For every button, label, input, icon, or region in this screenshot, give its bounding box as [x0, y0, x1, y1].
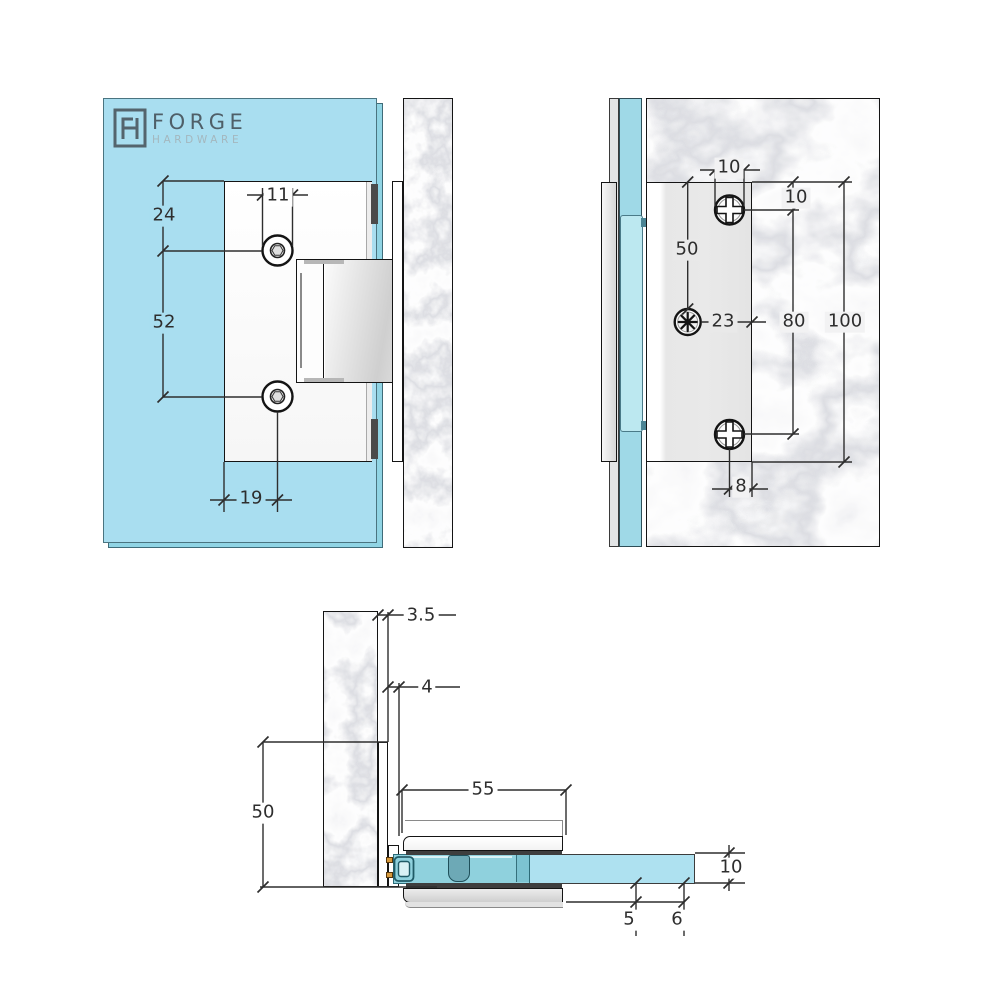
dim-label-23: 23 [709, 312, 738, 333]
dim-label-19: 19 [237, 489, 266, 510]
dim-label-10-offset: 10 [782, 188, 811, 209]
dim-label-4: 4 [418, 678, 435, 699]
dim-label-8: 8 [732, 477, 749, 498]
leaf-clamp-edge-band [516, 855, 529, 882]
clamp-pad-bottom [371, 419, 378, 459]
dim-label-10-glass: 10 [717, 858, 746, 879]
cover-plate-edge [601, 182, 617, 462]
drawing-canvas: FORGE HARDWARE [0, 0, 1000, 1000]
dim-label-3-5: 3.5 [404, 606, 439, 627]
dim-label-24: 24 [150, 206, 179, 227]
logo-monogram-icon [113, 108, 147, 148]
brand-logo: FORGE HARDWARE [113, 108, 247, 148]
dim-label-52: 52 [150, 313, 179, 334]
set-pin-bottom [386, 872, 393, 879]
brand-subtitle: HARDWARE [152, 134, 247, 146]
knuckle-barrel [325, 260, 392, 382]
glass-hinge-cutout-inset [620, 215, 643, 432]
brand-name: FORGE [152, 111, 247, 133]
dim-label-80: 80 [780, 312, 809, 333]
dim-label-10-top: 10 [715, 158, 744, 179]
set-pin-top [386, 857, 393, 864]
dim-label-11: 11 [264, 186, 293, 207]
marble-wall-plan [323, 611, 378, 887]
dim-label-50-plan: 50 [249, 803, 278, 824]
clamp-pad-top [371, 184, 378, 224]
cover-plate-top-face [405, 820, 563, 836]
dim-label-5: 5 [620, 910, 637, 931]
cover-plate-top [403, 836, 563, 851]
gasket-bottom [406, 883, 562, 888]
dim-label-100: 100 [825, 312, 865, 333]
hinge-knuckle [296, 259, 393, 383]
knuckle-tab-top [304, 260, 344, 264]
dim-label-55: 55 [469, 780, 498, 801]
marble-wall-column [403, 98, 453, 548]
dim-label-6: 6 [668, 910, 685, 931]
knuckle-tab-bottom [304, 378, 344, 382]
wall-mount-plate-plan [378, 742, 388, 887]
pivot-pin-section [448, 855, 470, 883]
cover-plate-bottom-face [405, 902, 563, 908]
wall-plate-edge-band [392, 181, 403, 462]
knuckle-pin-line [300, 273, 302, 368]
dim-label-50-side: 50 [673, 240, 702, 261]
cover-plate-bottom [403, 888, 563, 903]
